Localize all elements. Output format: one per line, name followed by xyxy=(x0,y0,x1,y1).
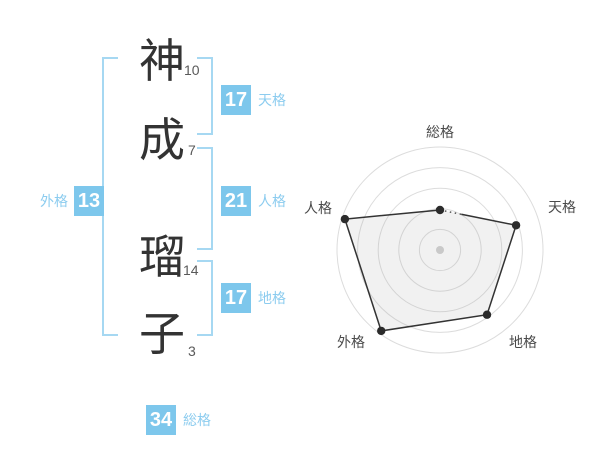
radar-axis-label: 外格 xyxy=(337,334,365,350)
name-fortune-panel: 神 10 成 7 瑠 14 子 3 17 天格 21 人格 外格 13 17 地… xyxy=(0,0,600,470)
radar-point xyxy=(341,215,349,223)
radar-axis-label: 総格 xyxy=(426,124,454,140)
radar-center-dot xyxy=(436,246,444,254)
radar-axis-label: 地格 xyxy=(509,334,537,350)
radar-point xyxy=(436,206,444,214)
radar-axis-label: 天格 xyxy=(548,199,576,215)
radar-point xyxy=(483,311,491,319)
radar-point xyxy=(377,327,385,335)
radar-chart: 総格天格地格外格人格 xyxy=(0,0,600,470)
radar-point xyxy=(512,221,520,229)
radar-axis-label: 人格 xyxy=(304,200,332,216)
